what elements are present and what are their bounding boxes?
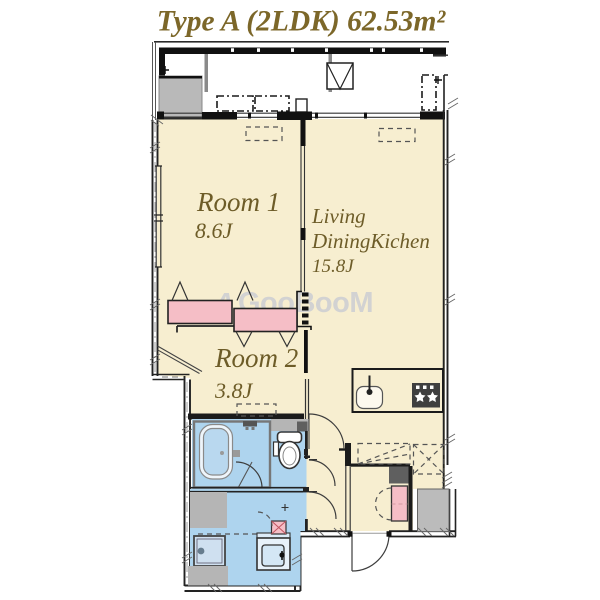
svg-text:DiningKichen: DiningKichen xyxy=(311,229,430,253)
svg-text:Room 2: Room 2 xyxy=(214,343,298,373)
svg-text:Living: Living xyxy=(311,204,366,228)
svg-text:3.8J: 3.8J xyxy=(214,378,254,403)
svg-text:8.6J: 8.6J xyxy=(195,218,234,243)
svg-text:15.8J: 15.8J xyxy=(312,256,355,277)
svg-text:Type A (2LDK) 62.53m²: Type A (2LDK) 62.53m² xyxy=(157,6,447,38)
svg-text:Room 1: Room 1 xyxy=(196,187,280,217)
